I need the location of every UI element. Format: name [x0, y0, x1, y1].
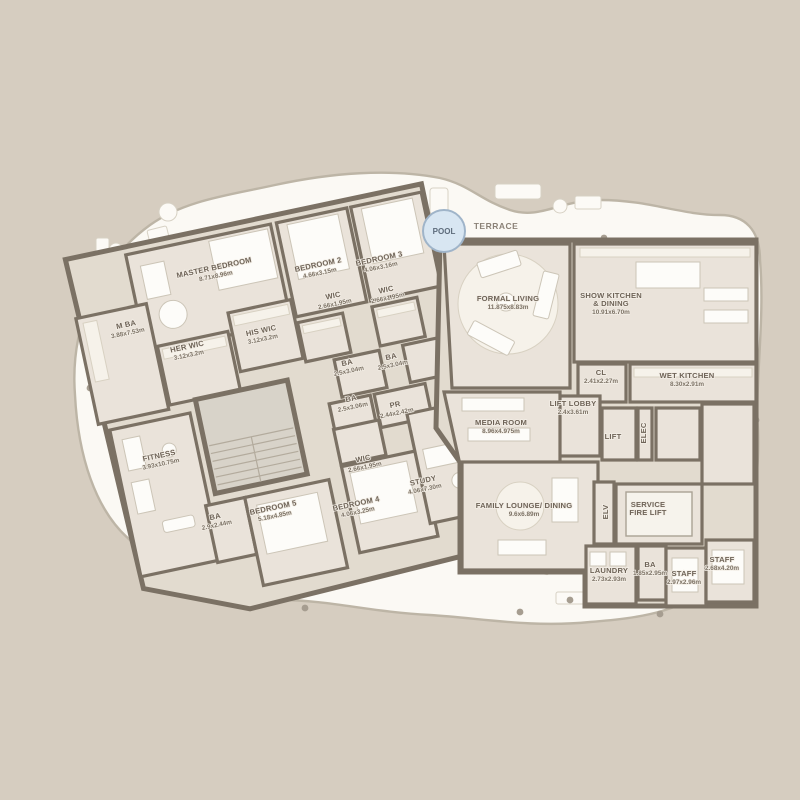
svg-text:9.6x6.89m: 9.6x6.89m — [509, 511, 540, 518]
label-staff-1: STAFF2.97x2.96m — [667, 569, 701, 586]
svg-text:8.96x4.975m: 8.96x4.975m — [482, 428, 520, 435]
svg-text:2.68x4.20m: 2.68x4.20m — [705, 565, 739, 572]
svg-text:2.73x2.93m: 2.73x2.93m — [592, 576, 626, 583]
svg-text:FAMILY LOUNGE/ DINING: FAMILY LOUNGE/ DINING — [476, 501, 573, 510]
svg-text:LIFT LOBBY: LIFT LOBBY — [550, 399, 597, 408]
svg-text:2.41x2.27m: 2.41x2.27m — [584, 378, 618, 385]
svg-text:STAFF: STAFF — [672, 569, 697, 578]
floor-plan-page: MASTER BEDROOM8.71x8.96m BEDROOM 24.66x3… — [0, 0, 800, 800]
svg-text:2.97x2.96m: 2.97x2.96m — [667, 579, 701, 586]
label-lift: LIFT — [605, 432, 622, 441]
svg-text:MEDIA ROOM: MEDIA ROOM — [475, 418, 527, 427]
svg-text:10.91x6.70m: 10.91x6.70m — [592, 309, 630, 316]
svg-text:CL: CL — [596, 368, 607, 377]
room-service-right-1 — [702, 404, 754, 484]
svg-text:LIFT: LIFT — [605, 432, 622, 441]
label-pool: POOL — [433, 227, 456, 236]
room-wic-bedroom-2 — [298, 313, 351, 362]
svg-text:FIRE LIFT: FIRE LIFT — [629, 508, 666, 517]
svg-text:LAUNDRY: LAUNDRY — [590, 566, 628, 575]
svg-text:POOL: POOL — [433, 227, 456, 236]
svg-text:STAFF: STAFF — [710, 555, 735, 564]
room-service-right-2 — [656, 408, 700, 460]
label-staff-2: STAFF2.68x4.20m — [705, 555, 739, 572]
svg-text:& DINING: & DINING — [593, 299, 629, 308]
svg-text:ELEC: ELEC — [639, 422, 648, 443]
svg-text:BA: BA — [644, 560, 656, 569]
svg-text:8.30x2.91m: 8.30x2.91m — [670, 381, 704, 388]
svg-text:FORMAL LIVING: FORMAL LIVING — [477, 294, 539, 303]
label-service-fire-lift: SERVICEFIRE LIFT — [629, 500, 666, 517]
svg-text:2.4x3.61m: 2.4x3.61m — [558, 409, 589, 416]
label-terrace: TERRACE — [474, 221, 519, 231]
label-elec: ELEC — [639, 422, 648, 443]
svg-text:ELV: ELV — [601, 504, 610, 520]
floor-plan-drawing: MASTER BEDROOM8.71x8.96m BEDROOM 24.66x3… — [0, 0, 800, 800]
svg-text:TERRACE: TERRACE — [474, 221, 519, 231]
svg-text:1.85x2.95m: 1.85x2.95m — [633, 570, 667, 577]
room-wic-bedroom-3 — [372, 297, 425, 346]
label-elv: ELV — [601, 504, 610, 520]
label-laundry: LAUNDRY2.73x2.93m — [590, 566, 628, 583]
svg-text:11.875x8.83m: 11.875x8.83m — [488, 304, 529, 311]
svg-text:WET KITCHEN: WET KITCHEN — [660, 371, 715, 380]
label-media-room: MEDIA ROOM8.96x4.975m — [475, 418, 527, 435]
